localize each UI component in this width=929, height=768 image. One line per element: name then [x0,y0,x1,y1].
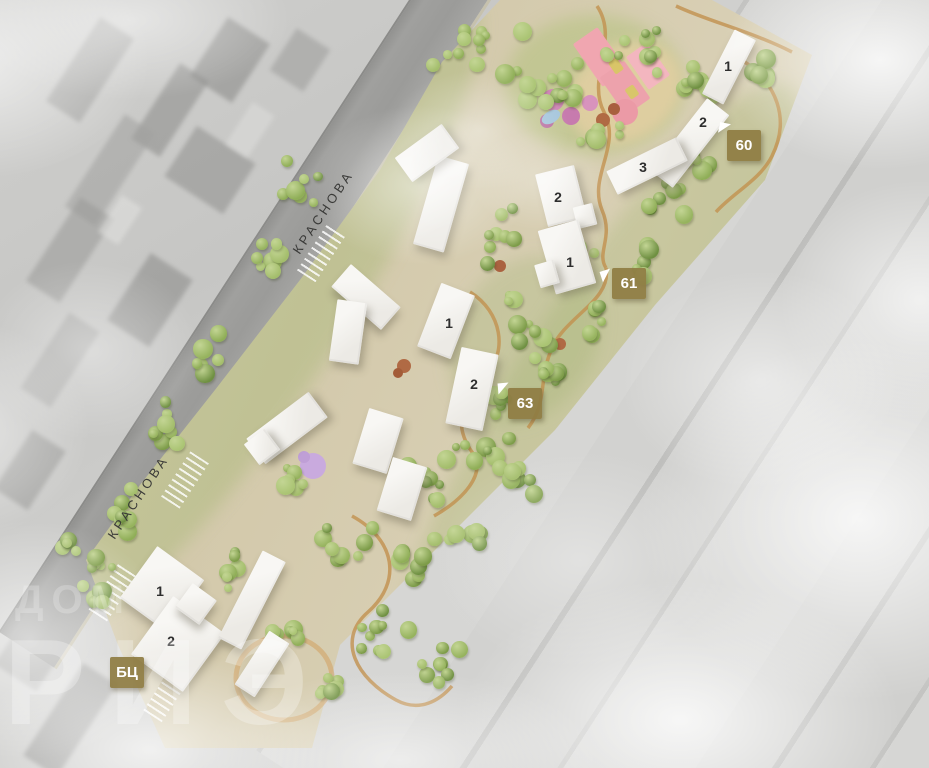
tree-icon [519,76,536,93]
tree-icon [639,240,658,259]
satellite-building [46,17,134,123]
tree-icon [366,521,379,534]
tree-icon [437,450,455,468]
satellite-building [0,430,66,510]
plot-badge-61-label: 61 [621,275,638,292]
tree-icon [400,621,417,638]
decorative-tree [494,260,506,272]
unit-label-63-2[interactable]: 2 [470,376,478,392]
satellite-building [20,312,99,407]
tree-icon [169,436,184,451]
tree-icon [506,231,521,246]
tree-icon [511,333,528,350]
tree-icon [466,452,484,470]
tree-icon [417,659,427,669]
badge-pointer-icon [718,122,731,135]
tree-icon [357,623,367,633]
tree-icon [443,50,452,59]
tree-icon [460,440,470,450]
tree-icon [229,550,240,561]
tree-icon [529,325,542,338]
tree-icon [299,174,309,184]
decorative-tree [393,368,403,378]
tree-icon [495,208,508,221]
tree-icon [281,155,294,168]
tree-icon [286,181,305,200]
unit-label-bc-2[interactable]: 2 [167,633,175,649]
tree-icon [587,130,606,149]
plot-badge-63[interactable]: 63 [508,388,542,419]
tree-icon [644,50,657,63]
decorative-tree [608,103,620,115]
decorative-tree [298,451,310,463]
unit-label-61-2[interactable]: 2 [554,189,562,205]
plot-badge-bc[interactable]: БЦ [110,657,144,688]
tree-icon [87,549,104,566]
plot-badge-63-label: 63 [517,395,534,412]
tree-icon [62,538,72,548]
tree-icon [615,121,624,130]
tree-icon [614,51,623,60]
tree-icon [538,94,554,110]
tree-icon [472,536,487,551]
tree-icon [750,66,768,84]
unit-label-bc-1[interactable]: 1 [156,583,164,599]
tree-icon [108,563,116,571]
tree-icon [457,32,471,46]
tree-icon [615,130,624,139]
tree-icon [353,551,363,561]
satellite-building [26,197,114,303]
tree-icon [393,546,410,563]
tree-icon [271,238,282,249]
unit-label-60-3[interactable]: 3 [639,159,647,175]
tree-icon [378,621,387,630]
tree-icon [436,642,448,654]
tree-icon [322,523,331,532]
tree-icon [298,479,309,490]
tree-icon [309,198,318,207]
tree-icon [414,547,432,565]
decorative-tree [562,107,580,125]
tree-icon [525,485,543,503]
tree-icon [547,73,557,83]
tree-icon [641,198,657,214]
tree-icon [652,26,661,35]
badge-pointer-icon [498,383,510,395]
plot-badge-60[interactable]: 60 [727,130,761,161]
tree-icon [576,137,585,146]
tree-icon [77,580,89,592]
tree-icon [430,492,446,508]
tree-icon [356,643,367,654]
tree-icon [452,443,460,451]
tree-icon [504,297,513,306]
unit-label-63-1[interactable]: 1 [445,315,453,331]
satellite-building [107,253,193,347]
tree-icon [325,542,339,556]
tree-icon [589,248,599,258]
tree-icon [210,325,227,342]
unit-label-60-1[interactable]: 1 [724,58,732,74]
tree-icon [469,57,484,72]
plot-badge-61[interactable]: 61 [612,268,646,299]
unit-label-60-2[interactable]: 2 [699,114,707,130]
tree-icon [433,676,445,688]
tree-icon [582,325,598,341]
tree-icon [504,463,521,480]
tree-icon [502,432,516,446]
unit-label-61-1[interactable]: 1 [566,254,574,270]
masterplan-map: КРАСНОВА КРАСНОВА 1 2 3 2 1 1 2 1 2 60 6… [0,0,929,768]
tree-icon [95,595,110,610]
decorative-tree [582,95,598,111]
badge-pointer-icon [600,269,614,283]
tree-icon [157,415,175,433]
tree-icon [453,48,464,59]
tree-icon [557,90,568,101]
tree-icon [212,354,224,366]
plot-badge-60-label: 60 [736,137,753,154]
tree-icon [495,64,515,84]
tree-icon [675,205,693,223]
tree-icon [556,70,573,87]
tree-icon [356,534,373,551]
tree-icon [193,339,212,358]
tree-icon [313,172,323,182]
tree-icon [427,532,441,546]
tree-icon [484,230,494,240]
plot-badge-bc-label: БЦ [116,664,138,681]
satellite-building [270,28,331,92]
tree-icon [323,683,340,700]
tree-icon [276,476,295,495]
